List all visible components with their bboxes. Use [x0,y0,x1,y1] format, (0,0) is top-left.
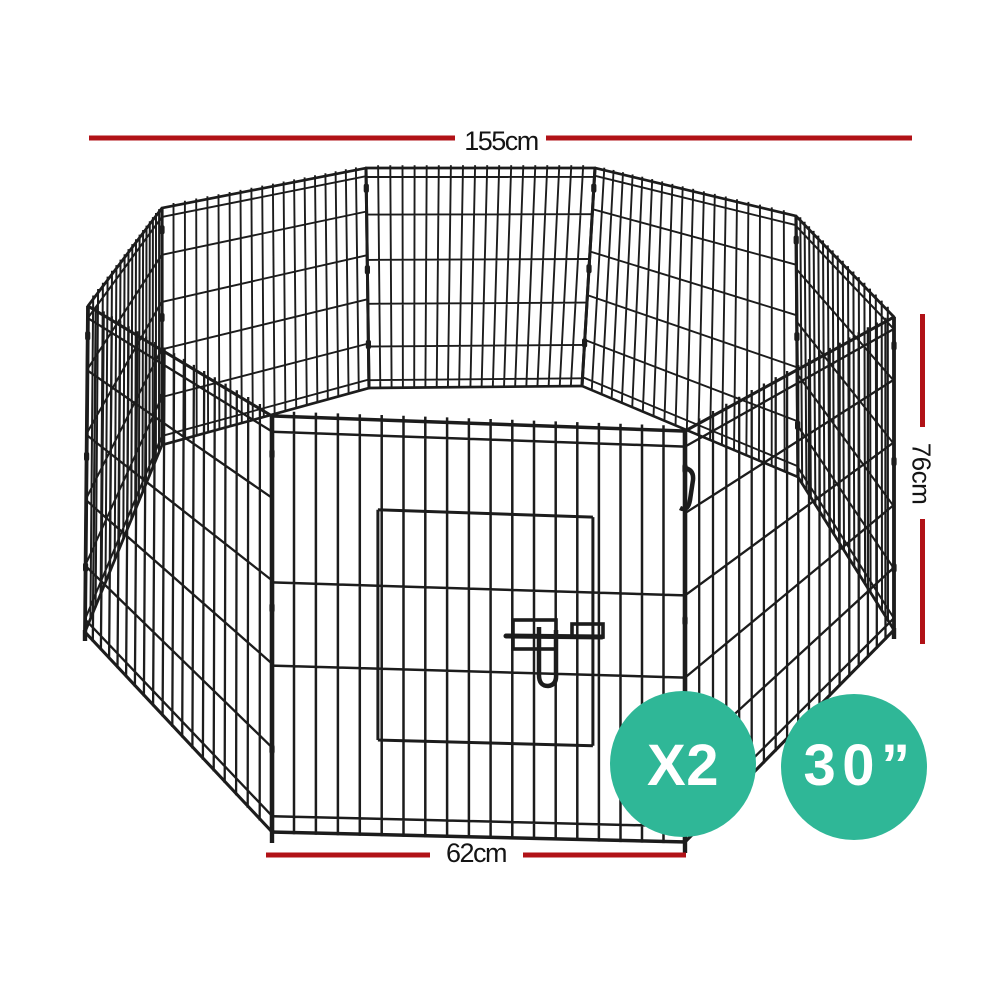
svg-text:155cm: 155cm [464,126,538,156]
svg-text:30”: 30” [803,733,916,798]
svg-text:76cm: 76cm [907,443,937,505]
svg-text:62cm: 62cm [446,838,506,868]
svg-text:X2: X2 [647,733,719,798]
